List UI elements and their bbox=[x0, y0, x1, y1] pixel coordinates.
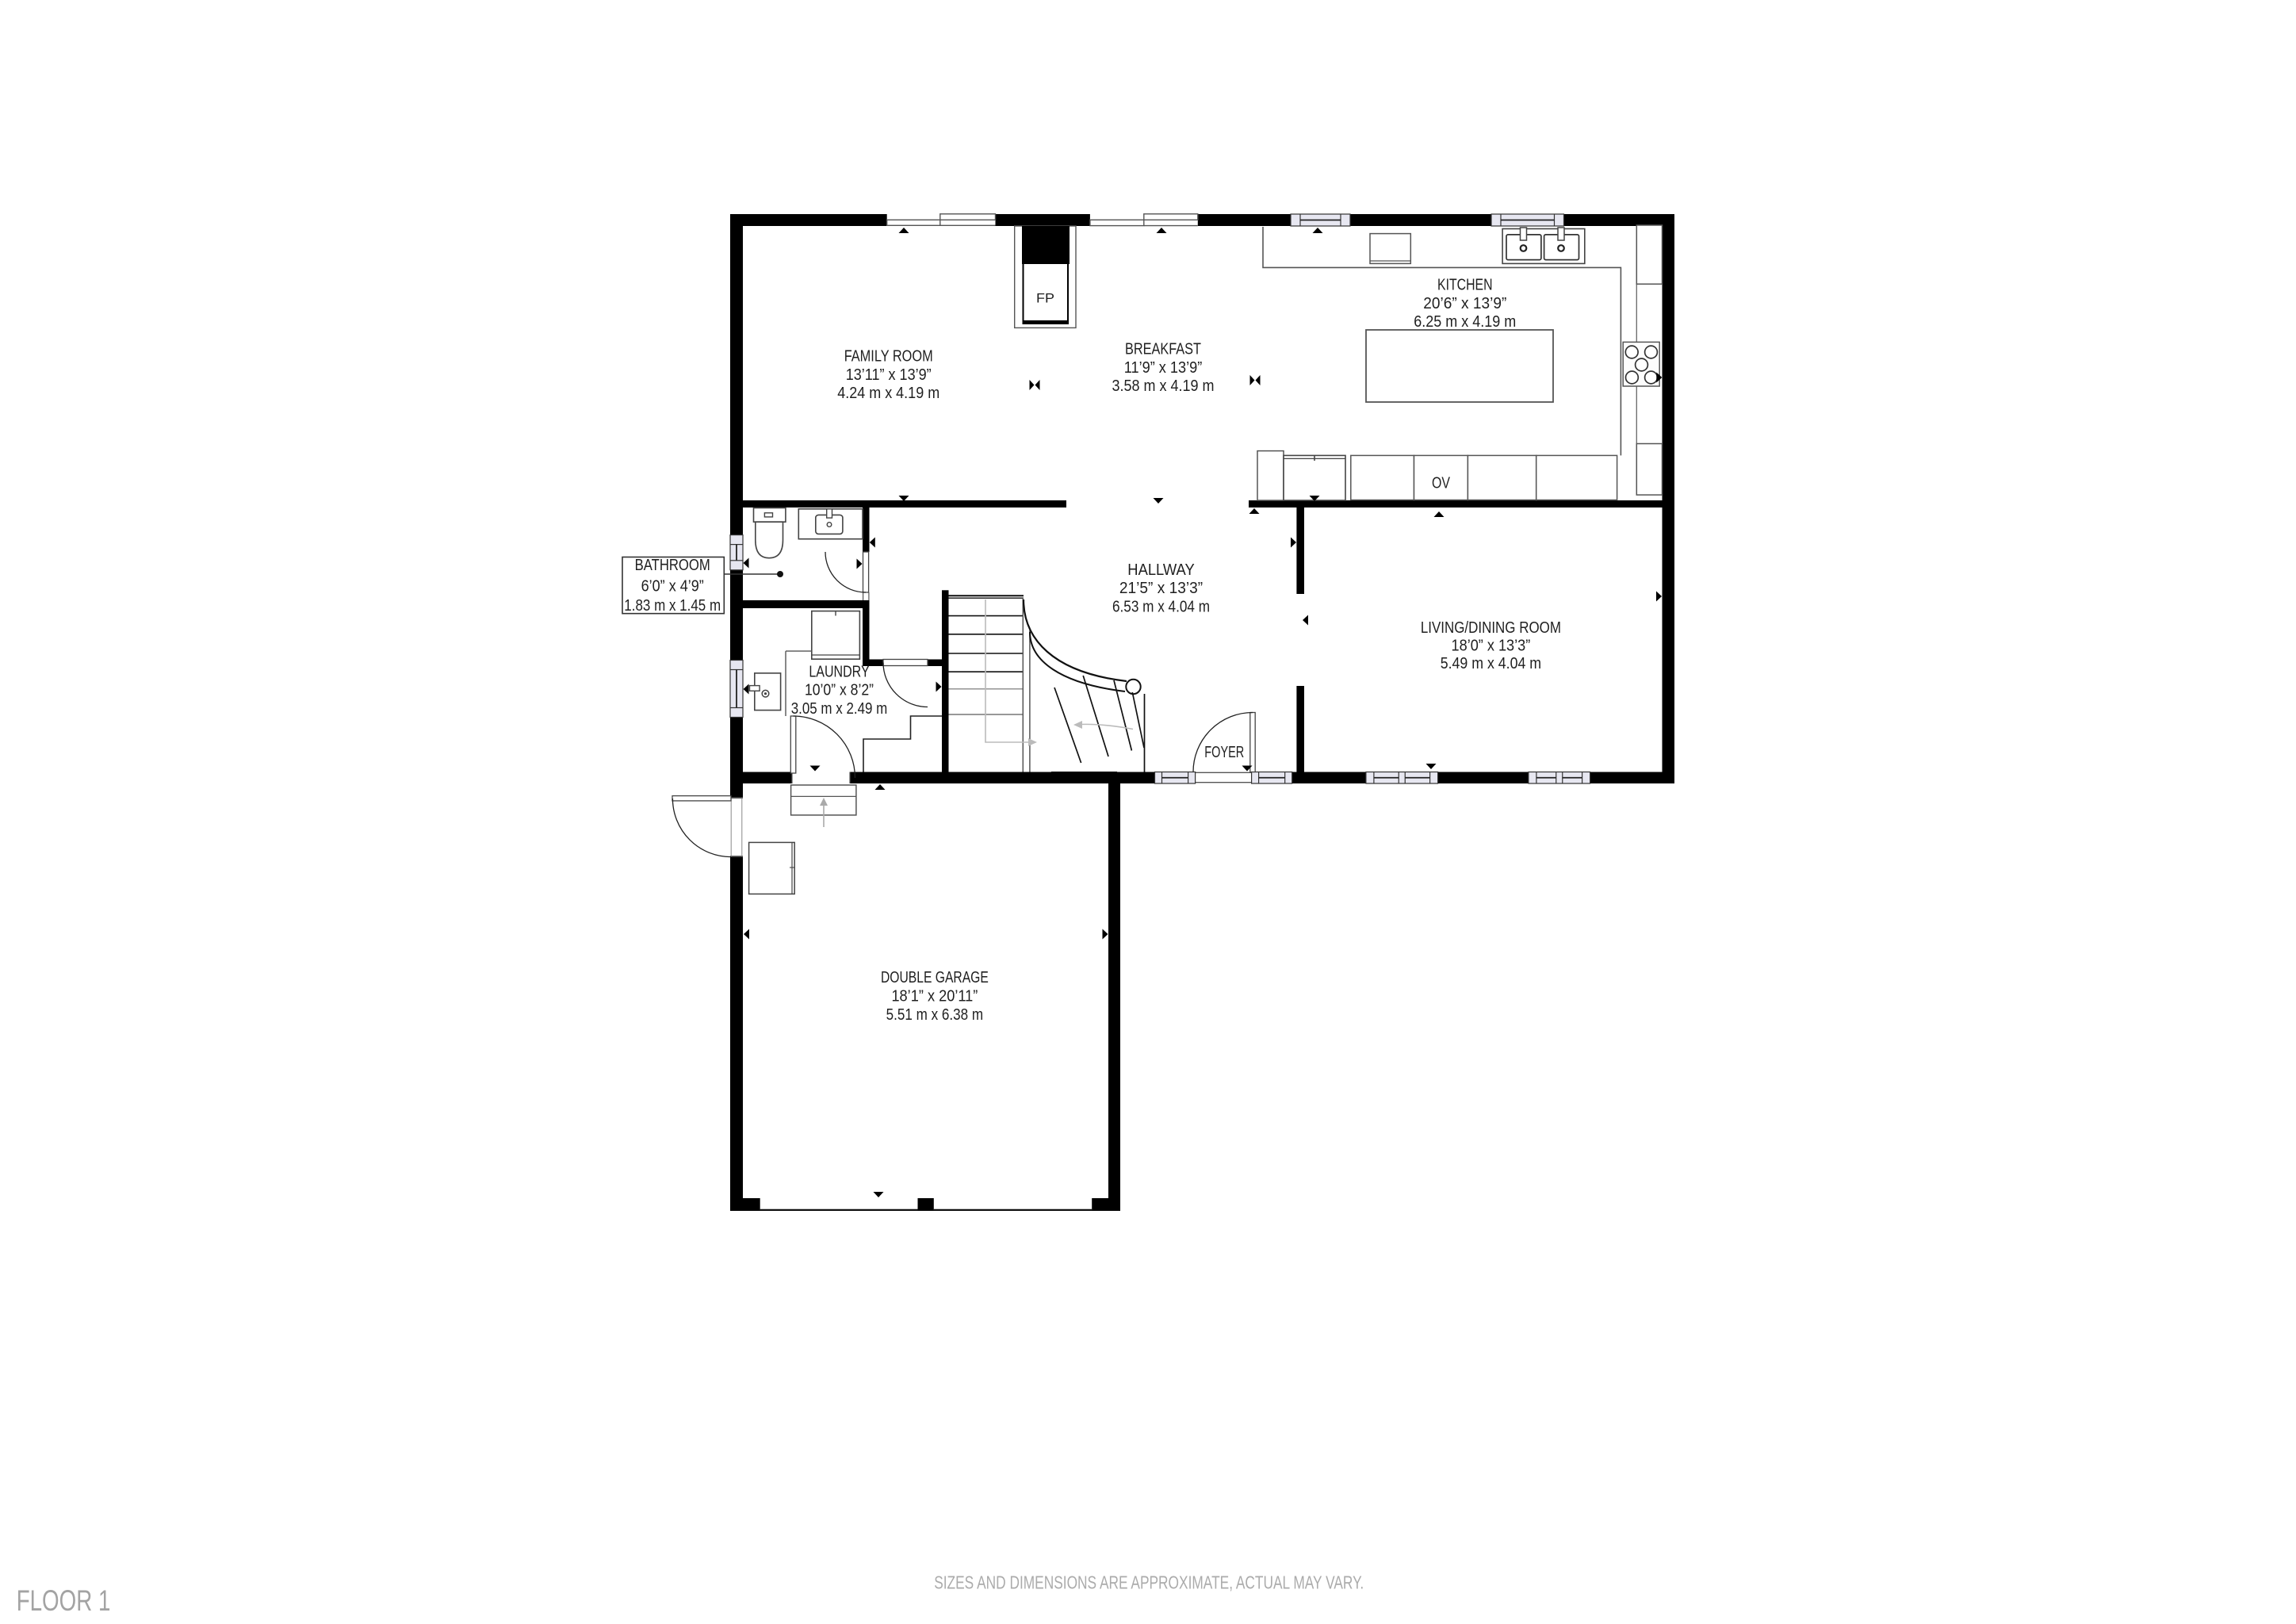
svg-text:LAUNDRY: LAUNDRY bbox=[809, 663, 869, 680]
svg-text:6.25 m x 4.19 m: 6.25 m x 4.19 m bbox=[1414, 313, 1516, 331]
svg-text:FAMILY ROOM: FAMILY ROOM bbox=[844, 348, 933, 366]
svg-text:10’0” x 8’2”: 10’0” x 8’2” bbox=[805, 682, 874, 699]
svg-text:KITCHEN: KITCHEN bbox=[1437, 277, 1493, 294]
svg-text:18’0” x 13’3”: 18’0” x 13’3” bbox=[1452, 637, 1531, 654]
svg-text:FLOOR 1: FLOOR 1 bbox=[17, 1584, 111, 1617]
svg-text:BATHROOM: BATHROOM bbox=[635, 557, 710, 574]
svg-text:LIVING/DINING ROOM: LIVING/DINING ROOM bbox=[1421, 619, 1561, 637]
svg-text:5.49 m x 4.04 m: 5.49 m x 4.04 m bbox=[1441, 655, 1541, 672]
svg-text:FOYER: FOYER bbox=[1204, 744, 1244, 761]
svg-text:21’5” x 13’3”: 21’5” x 13’3” bbox=[1119, 580, 1203, 597]
svg-text:1.83 m x 1.45 m: 1.83 m x 1.45 m bbox=[624, 597, 721, 615]
svg-text:DOUBLE GARAGE: DOUBLE GARAGE bbox=[881, 969, 989, 986]
svg-text:11’9” x 13’9”: 11’9” x 13’9” bbox=[1124, 359, 1203, 377]
svg-text:20’6” x 13’9”: 20’6” x 13’9” bbox=[1423, 295, 1506, 312]
svg-text:4.24 m x 4.19 m: 4.24 m x 4.19 m bbox=[837, 385, 939, 402]
svg-text:HALLWAY: HALLWAY bbox=[1127, 561, 1194, 579]
svg-text:FP: FP bbox=[1036, 291, 1054, 306]
svg-text:OV: OV bbox=[1432, 475, 1451, 492]
svg-text:BREAKFAST: BREAKFAST bbox=[1125, 341, 1201, 358]
svg-text:6’0” x 4’9”: 6’0” x 4’9” bbox=[641, 578, 704, 596]
svg-text:18’1” x 20’11”: 18’1” x 20’11” bbox=[891, 987, 978, 1005]
svg-text:SIZES AND DIMENSIONS ARE APPRO: SIZES AND DIMENSIONS ARE APPROXIMATE, AC… bbox=[934, 1572, 1364, 1592]
svg-text:3.05 m x 2.49 m: 3.05 m x 2.49 m bbox=[791, 700, 888, 718]
svg-text:3.58 m x 4.19 m: 3.58 m x 4.19 m bbox=[1112, 377, 1215, 395]
svg-text:13’11” x 13’9”: 13’11” x 13’9” bbox=[846, 366, 932, 384]
svg-text:6.53 m x 4.04 m: 6.53 m x 4.04 m bbox=[1112, 598, 1210, 615]
svg-text:5.51 m x 6.38 m: 5.51 m x 6.38 m bbox=[886, 1006, 984, 1024]
